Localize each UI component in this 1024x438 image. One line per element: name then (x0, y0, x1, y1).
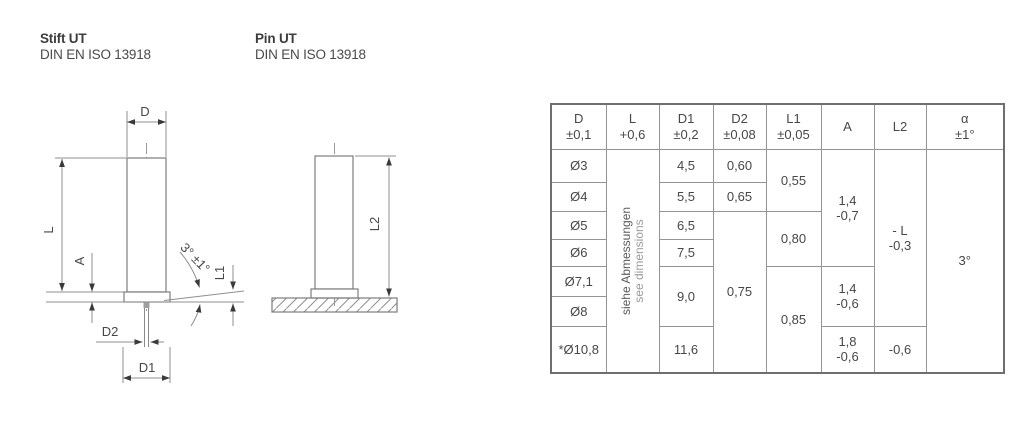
stud-flange (124, 292, 170, 302)
header-L2: L2 (874, 104, 926, 149)
angle-arc-lower (191, 305, 200, 327)
cell-l2-0: - L -0,3 (874, 149, 926, 326)
cell-l-note: siehe Abmessungen see dimensions (606, 149, 659, 373)
cell-a-0-line2: -0,7 (822, 208, 874, 223)
table-row: Ø3 siehe Abmessungen see dimensions 4,5 … (551, 149, 1004, 182)
header-L1-tolerance: ±0,05 (767, 127, 821, 143)
cell-d1-1: 5,5 (659, 182, 713, 211)
standard-ref-de: DIN EN ISO 13918 (40, 47, 151, 63)
note-en: see dimensions (633, 207, 646, 315)
dim-label-L1: L1 (212, 266, 227, 280)
cell-d1-0: 4,5 (659, 149, 713, 182)
cell-a-0: 1,4 -0,7 (821, 149, 874, 266)
dim-label-D2: D2 (102, 324, 119, 339)
header-D2-symbol: D2 (714, 111, 766, 127)
flange-angle-line (164, 291, 244, 301)
header-A: A (821, 104, 874, 149)
cell-a-1-line1: 1,4 (822, 281, 874, 296)
cell-l2-0-line2: -0,3 (875, 238, 926, 253)
ignition-tip (144, 302, 150, 308)
header-L1: L1 ±0,05 (766, 104, 821, 149)
dim-label-L2: L2 (367, 217, 382, 231)
cell-d-5: Ø8 (551, 296, 606, 326)
cell-l1-0: 0,55 (766, 149, 821, 211)
header-L: L +0,6 (606, 104, 659, 149)
header-L-symbol: L (607, 111, 659, 127)
dimension-table: D ±0,1 L +0,6 D1 ±0,2 D2 ±0,08 L1 ±0,0 (550, 103, 1005, 374)
header-D1-tolerance: ±0,2 (660, 127, 713, 143)
cell-l2-1: -0,6 (874, 326, 926, 373)
stud-shaft (127, 158, 166, 292)
cell-d1-5: 11,6 (659, 326, 713, 373)
cell-a-1-line2: -0,6 (822, 296, 874, 311)
dim-label-D1: D1 (139, 360, 156, 375)
dim-label-D: D (140, 104, 149, 119)
header-L-tolerance: +0,6 (607, 127, 659, 143)
cell-a-0-line1: 1,4 (822, 193, 874, 208)
cell-d-2: Ø5 (551, 211, 606, 239)
pin-flange (311, 289, 358, 298)
base-plate-hatched (272, 298, 397, 312)
cell-l2-0-line1: - L (875, 223, 926, 238)
cell-alpha: 3° (926, 149, 1004, 373)
cell-d-3: Ø6 (551, 239, 606, 266)
see-dimensions-note: siehe Abmessungen see dimensions (620, 207, 646, 315)
dim-label-L: L (41, 226, 56, 233)
cell-d-6: *Ø10,8 (551, 326, 606, 373)
header-D-symbol: D (552, 111, 606, 127)
cell-d-4: Ø7,1 (551, 266, 606, 296)
header-D1-symbol: D1 (660, 111, 713, 127)
technical-drawing-stud: D L A 3° ±1° L1 D2 D1 (40, 95, 260, 385)
title-stift: Stift UT DIN EN ISO 13918 (40, 31, 151, 63)
header-alpha-tolerance: ±1° (927, 127, 1004, 143)
cell-d2-1: 0,65 (713, 182, 766, 211)
note-de: siehe Abmessungen (620, 207, 633, 315)
cell-d-0: Ø3 (551, 149, 606, 182)
product-name-en: Pin UT (255, 31, 366, 47)
header-alpha-symbol: α (927, 111, 1004, 127)
header-L2-symbol: L2 (875, 119, 926, 135)
header-D2: D2 ±0,08 (713, 104, 766, 149)
cell-a-1: 1,4 -0,6 (821, 266, 874, 326)
cell-a-2-line1: 1,8 (822, 334, 874, 349)
table-header-row: D ±0,1 L +0,6 D1 ±0,2 D2 ±0,08 L1 ±0,0 (551, 104, 1004, 149)
dim-label-A: A (72, 256, 87, 265)
standard-ref-en: DIN EN ISO 13918 (255, 47, 366, 63)
cell-d1-3: 7,5 (659, 239, 713, 266)
pin-shaft (315, 156, 353, 289)
header-D: D ±0,1 (551, 104, 606, 149)
cell-a-2-line2: -0,6 (822, 349, 874, 364)
page: Stift UT DIN EN ISO 13918 Pin UT DIN EN … (0, 0, 1024, 438)
cell-d2-2: 0,75 (713, 211, 766, 373)
cell-d1-2: 6,5 (659, 211, 713, 239)
header-D1: D1 ±0,2 (659, 104, 713, 149)
header-alpha: α ±1° (926, 104, 1004, 149)
cell-d1-4: 9,0 (659, 266, 713, 326)
header-L1-symbol: L1 (767, 111, 821, 127)
header-A-symbol: A (822, 119, 874, 135)
header-D2-tolerance: ±0,08 (714, 127, 766, 143)
dim-label-angle: 3° ±1° (177, 240, 213, 276)
cell-d-1: Ø4 (551, 182, 606, 211)
cell-d2-0: 0,60 (713, 149, 766, 182)
product-name-de: Stift UT (40, 31, 151, 47)
title-pin: Pin UT DIN EN ISO 13918 (255, 31, 366, 63)
cell-a-2: 1,8 -0,6 (821, 326, 874, 373)
header-D-tolerance: ±0,1 (552, 127, 606, 143)
cell-l1-2: 0,85 (766, 266, 821, 373)
technical-drawing-welded-pin: L2 (255, 130, 445, 330)
cell-l1-1: 0,80 (766, 211, 821, 266)
